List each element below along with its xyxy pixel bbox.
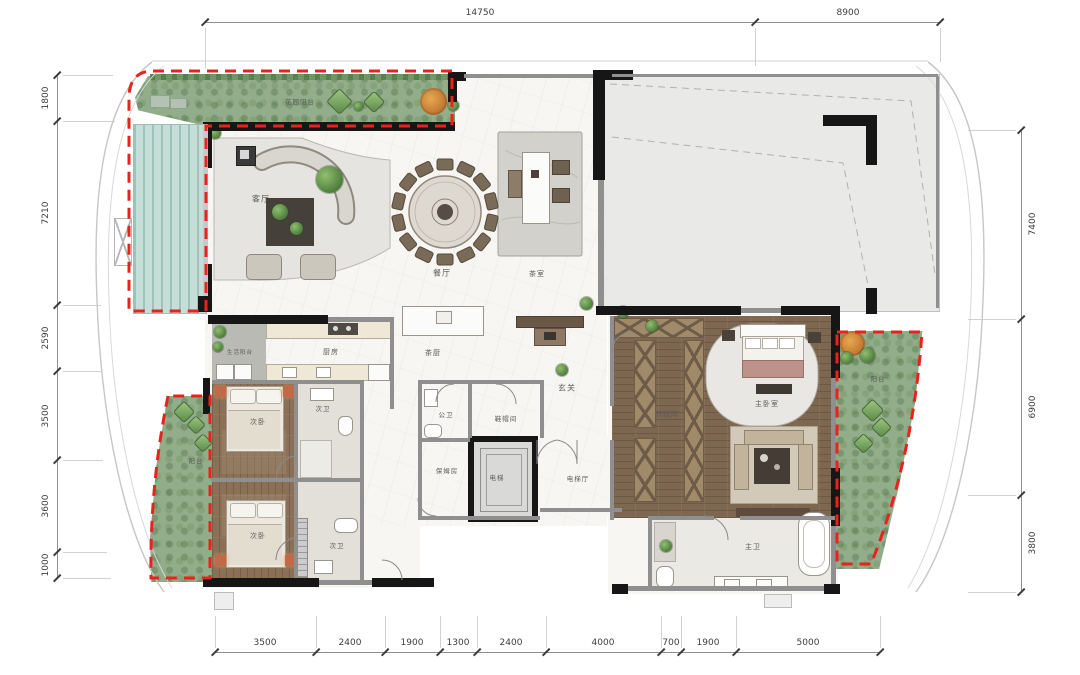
dim-ext xyxy=(63,460,103,461)
label-dining-room: 餐厅 xyxy=(433,268,451,279)
door-arc-closet xyxy=(612,332,632,352)
dim-ext xyxy=(968,495,1016,496)
door-arc-bedroom-b xyxy=(276,538,298,560)
label-guest-bath: 公卫 xyxy=(439,409,454,419)
overlay-graphics xyxy=(0,0,1080,675)
dim-left-1: 1800 xyxy=(41,87,51,110)
label-master-bedroom: 主卧室 xyxy=(755,399,779,409)
label-service-balcony: 生活阳台 xyxy=(227,348,253,356)
dim-line-left xyxy=(57,75,58,578)
label-elevator-hall: 电梯厅 xyxy=(567,473,590,483)
dim-ext xyxy=(63,371,101,372)
label-master-bath: 主卫 xyxy=(745,542,761,552)
entry-door-leaf xyxy=(537,440,557,464)
label-garden-balcony: 花园阳台 xyxy=(285,96,315,106)
door-arc-master-bath xyxy=(704,516,728,540)
door-arc-guest-bath xyxy=(436,384,454,402)
dim-ext xyxy=(63,121,115,122)
label-balcony-right: 阳台 xyxy=(871,373,886,383)
dim-ext xyxy=(661,616,662,648)
label-living-room: 客厅 xyxy=(252,194,270,205)
dim-ext xyxy=(681,616,682,648)
dim-ext xyxy=(880,616,881,648)
dim-ext xyxy=(968,592,1016,593)
label-elevator: 电梯 xyxy=(490,472,505,482)
dim-top-1: 14750 xyxy=(466,8,495,18)
door-arc-bedroom-a xyxy=(276,456,298,478)
dim-bottom-8: 1900 xyxy=(697,638,720,648)
balcony-boundary-red-dash xyxy=(129,71,922,578)
dim-line-top xyxy=(205,22,940,23)
red-dash-garden-pool xyxy=(129,71,452,311)
dim-bottom-5: 2400 xyxy=(500,638,523,648)
dim-ext xyxy=(477,616,478,648)
label-nanny-room: 保姆房 xyxy=(436,465,459,475)
dim-bottom-7: 700 xyxy=(662,638,679,648)
dim-ext xyxy=(440,616,441,648)
dim-left-6: 1000 xyxy=(41,554,51,577)
label-bath-a: 次卫 xyxy=(316,403,331,413)
label-kitchen: 厨房 xyxy=(323,347,339,357)
door-arc-nanny xyxy=(418,498,436,516)
dim-bottom-9: 5000 xyxy=(797,638,820,648)
dim-bottom-3: 1900 xyxy=(401,638,424,648)
label-foyer: 玄关 xyxy=(558,383,576,394)
dim-ext xyxy=(736,616,737,648)
dim-ext xyxy=(63,552,107,553)
dim-right-3: 3800 xyxy=(1028,532,1038,555)
door-arc-cloakroom xyxy=(496,384,516,404)
dim-top-2: 8900 xyxy=(837,8,860,18)
red-dash-right-balcony xyxy=(837,332,922,564)
dim-bottom-4: 1300 xyxy=(447,638,470,648)
dim-ext xyxy=(385,616,386,648)
label-cloakroom: 鞋帽间 xyxy=(495,413,518,423)
dim-ext xyxy=(63,578,111,579)
dim-ext xyxy=(546,616,547,648)
red-dash-left-balcony xyxy=(151,396,210,578)
dim-ext xyxy=(63,75,113,76)
dim-bottom-1: 3500 xyxy=(254,638,277,648)
dim-ext xyxy=(316,616,317,648)
dim-left-5: 3600 xyxy=(41,495,51,518)
floor-plan-canvas: 花园阳台 客厅 餐厅 茶室 茶厨 玄关 公卫 鞋帽间 保姆房 电梯 电梯厅 生活… xyxy=(0,0,1080,675)
dim-bottom-2: 2400 xyxy=(339,638,362,648)
dim-ext xyxy=(215,616,216,648)
dim-line-right xyxy=(1021,130,1022,592)
dim-ext xyxy=(968,130,1016,131)
dim-left-3: 2590 xyxy=(41,327,51,350)
dim-left-2: 7210 xyxy=(41,202,51,225)
red-dash-pool-right xyxy=(206,71,452,311)
label-balcony-left: 阳台 xyxy=(189,455,204,465)
door-arc-hall xyxy=(382,560,402,580)
entry-door-leaf xyxy=(557,440,577,464)
dim-ext xyxy=(755,28,756,66)
label-tea-kitchen: 茶厨 xyxy=(425,348,441,358)
label-bath-b: 次卫 xyxy=(330,540,345,550)
label-tea-room: 茶室 xyxy=(529,269,545,279)
dim-right-1: 7400 xyxy=(1028,213,1038,236)
label-bedroom-a: 次卧 xyxy=(250,417,266,427)
dim-ext xyxy=(63,305,101,306)
label-walk-in-closet: 衣帽间 xyxy=(656,408,679,418)
dim-ext xyxy=(205,28,206,68)
dim-ext xyxy=(940,28,941,62)
dim-bottom-6: 4000 xyxy=(592,638,615,648)
dim-right-2: 6900 xyxy=(1028,396,1038,419)
dim-ext xyxy=(968,319,1016,320)
label-bedroom-b: 次卧 xyxy=(250,531,266,541)
dim-left-4: 3500 xyxy=(41,405,51,428)
